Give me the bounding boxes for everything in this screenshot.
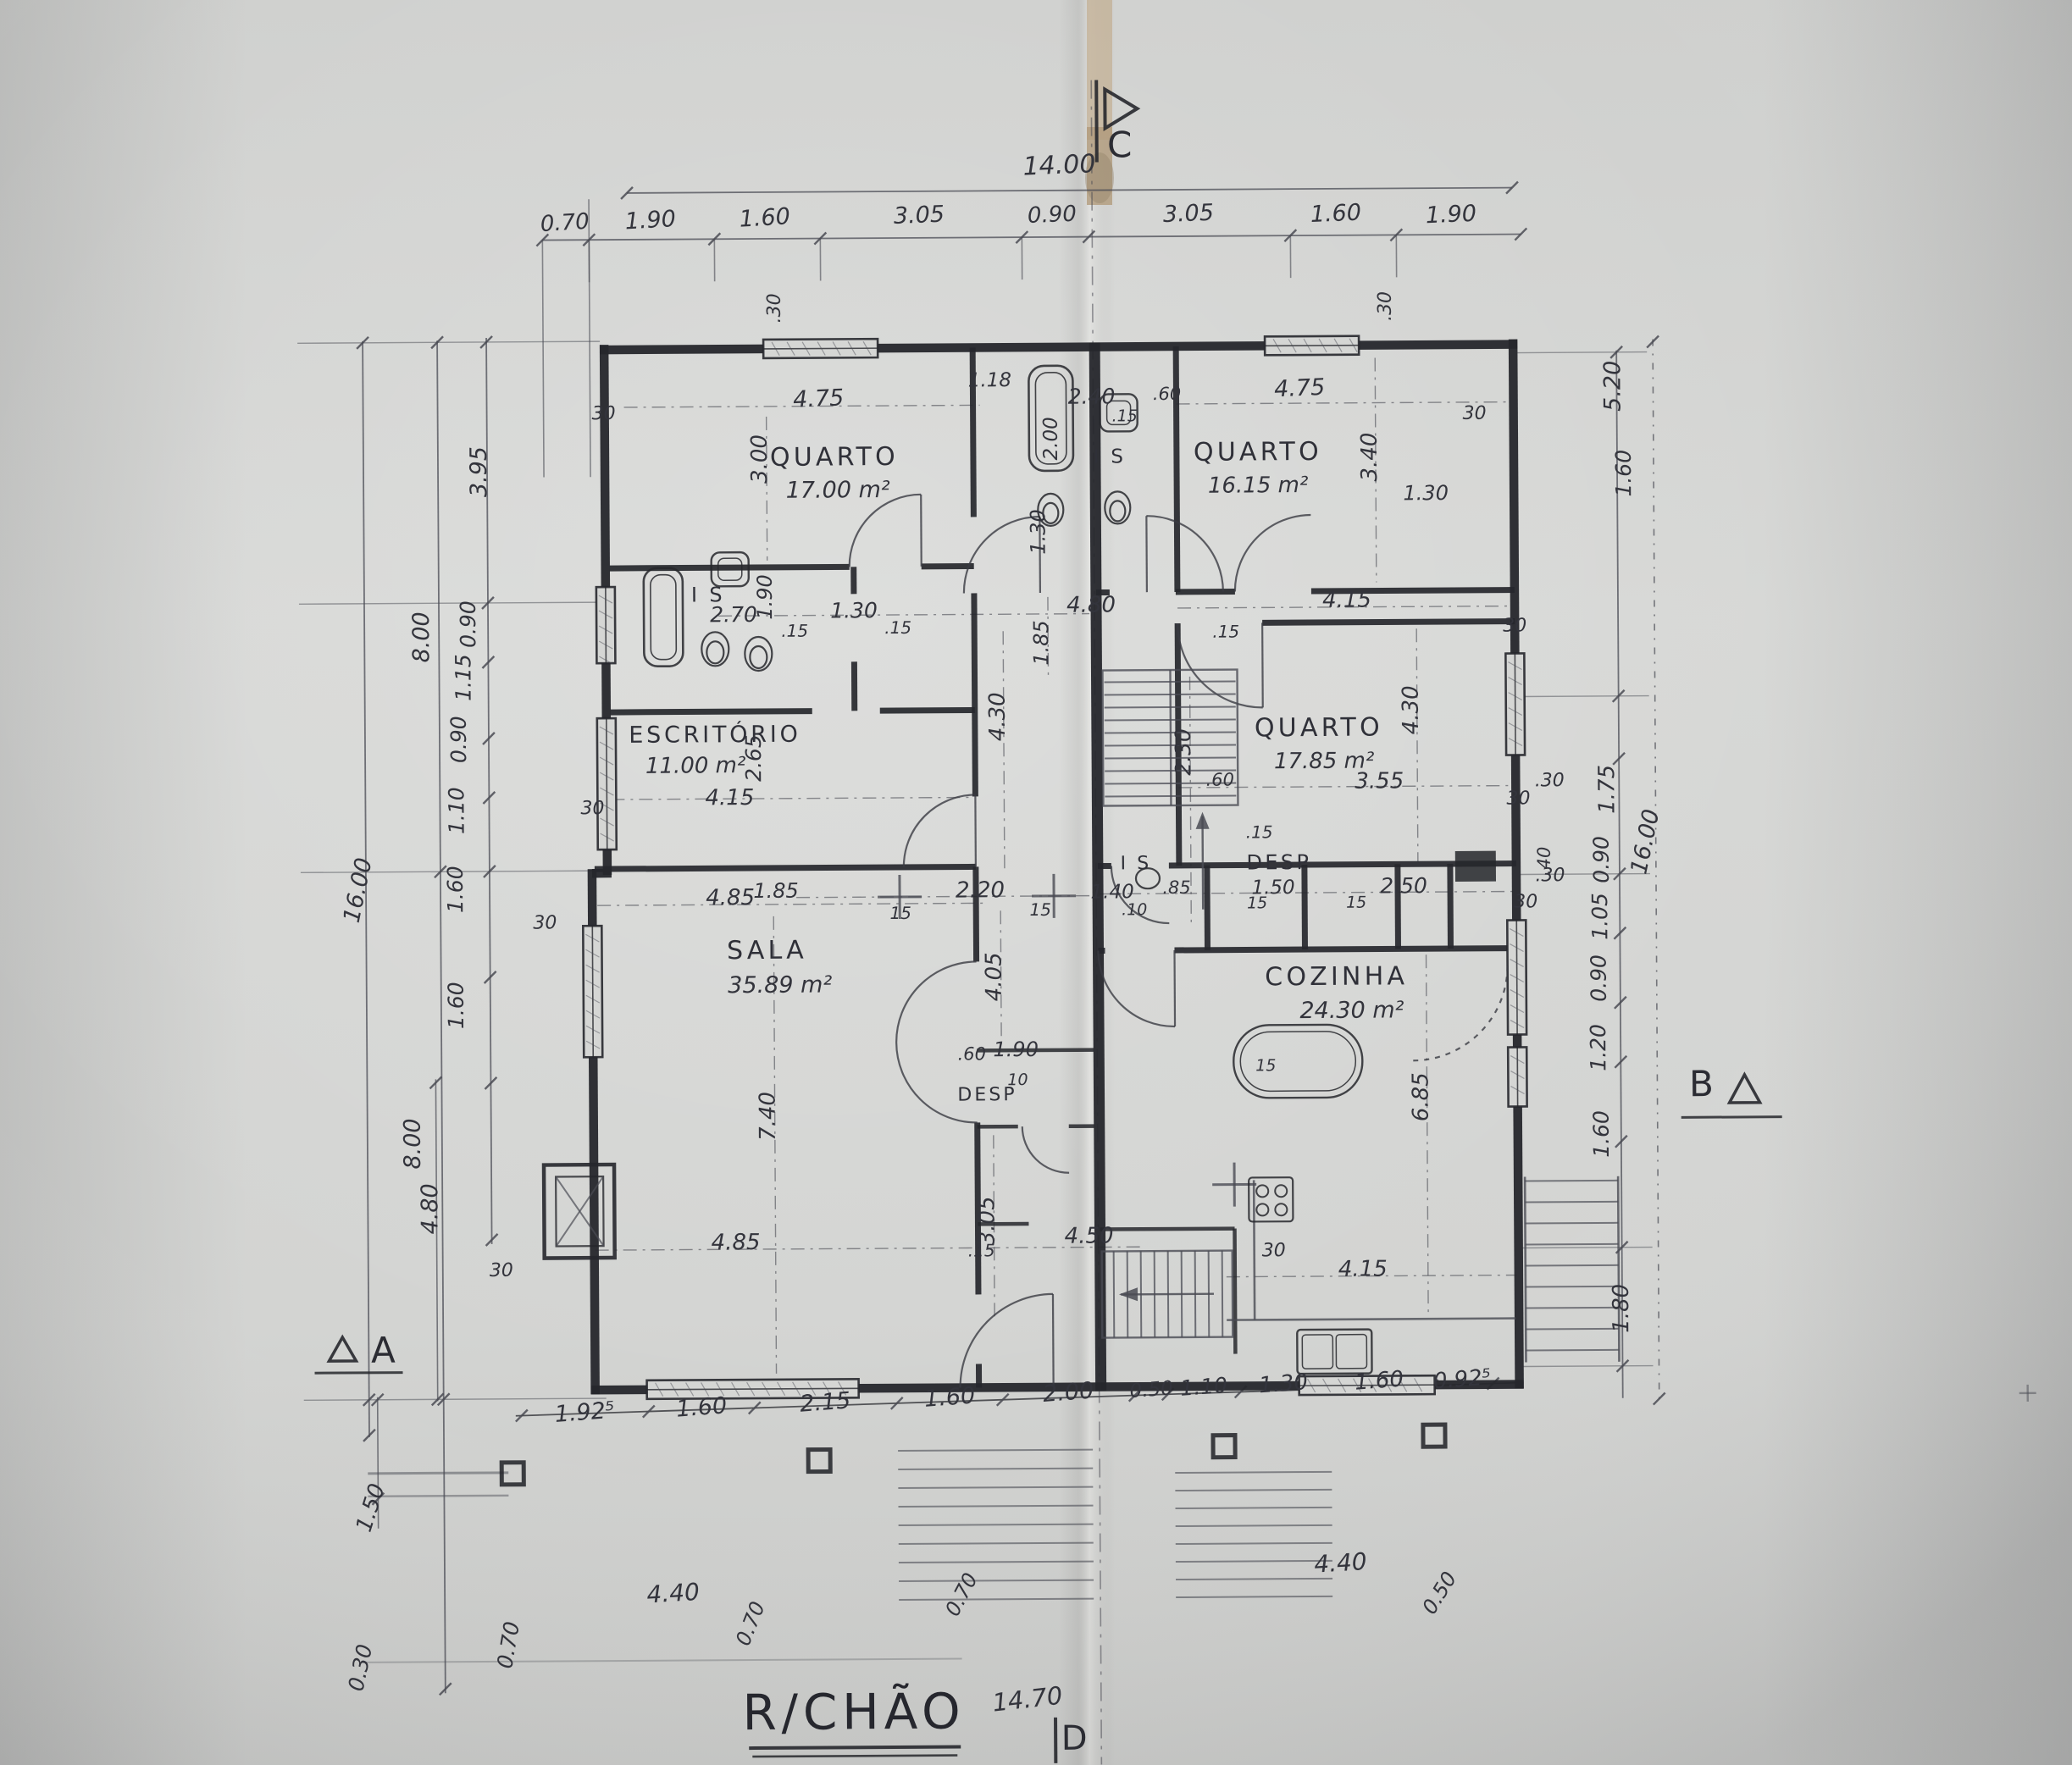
dimension-label: .15 [968,1240,995,1260]
room-label-desp-1: DESP [957,1084,1017,1105]
dimension-label: 4.50 [1065,1223,1114,1248]
dimension-label: 5.20 [1599,361,1626,412]
stair-tread [1525,1181,1618,1181]
interior-wall [1174,949,1516,950]
dim-ext [1523,1248,1653,1248]
stair-tread [1114,1251,1115,1337]
dimension-label: 1.90 [1425,201,1476,229]
dimension-label: 15 [1346,894,1366,912]
photographed-floor-plan: { "drawing": { "title": "R/CHÃO", "type"… [0,0,2072,1765]
dimension-label: 30 [1506,788,1530,809]
room-label-cozinha: COZINHA [1265,961,1408,992]
dimension-label: 4.75 [1273,374,1325,402]
window-mullion [606,587,607,663]
dimension-label: 1.60 [444,982,468,1029]
stair-tread [1526,1244,1619,1245]
dimension-label: 3.40 [1357,433,1382,482]
dimension-label: 0.70 [540,209,590,237]
dimension-label: 30 [533,912,557,933]
stair-arrow [1203,816,1204,910]
dimension-label: .60 [1205,770,1234,790]
dimension-label: 15 [1029,899,1051,920]
dimension-label: 1.60 [675,1392,728,1422]
interior-wall [1450,864,1451,949]
interior-wall [1207,866,1208,950]
dimension-label: 2.65 [741,734,766,782]
dimension-label: .15 [1111,407,1137,425]
porch-step [899,1562,1094,1563]
thin-wall [1235,1229,1236,1354]
porch-step [899,1599,1094,1600]
door-swing [1146,516,1147,592]
porch-step [898,1450,1093,1451]
porch-step [899,1524,1094,1525]
door-swing [1053,1294,1054,1387]
interior-wall [1262,622,1515,623]
porch-step [1176,1508,1332,1508]
dimension-label: 3.05 [974,1196,1000,1245]
dimension-label: 8.00 [408,611,435,662]
porch-step [1176,1596,1332,1597]
dimension-label: 30 [1503,615,1526,636]
porch-step [899,1543,1094,1544]
dimension-label: 4.15 [705,785,754,811]
dimension-label: 1.18 [968,369,1011,391]
dimension-label: 1.60 [1589,1110,1614,1158]
section-marker-c-label: C [1107,124,1133,165]
interior-wall [880,710,975,711]
dimension-label: 6.85 [1408,1072,1433,1121]
dimension-label: .15 [1246,822,1273,842]
dim-ext [1520,696,1649,697]
dimension-label: 30 [592,403,616,424]
dimension-label: 30 [490,1260,513,1281]
dimension-label: .15 [1212,622,1239,642]
dimension-label: 4.40 [1313,1547,1367,1579]
dimension-label: 24.30 m² [1299,997,1404,1024]
stair-tread [1526,1308,1619,1309]
dimension-label: .30 [1535,770,1565,791]
stair-tread [1526,1329,1619,1330]
dimension-label: 1.85 [753,879,799,903]
dimension-label: .10 [1122,900,1147,919]
dimension-label: 1.60 [1611,450,1636,497]
dimension-label: 2.00 [1040,417,1062,460]
window-mullion [1265,346,1359,346]
dimension-label: 0.90 [1027,202,1077,229]
title-underline [749,1747,961,1749]
dimension-label: 1.92⁵ [554,1397,616,1428]
interior-wall [611,711,812,712]
door-swing [1262,622,1263,707]
dimension-label: .15 [781,621,808,641]
room-label-desp-2: DESP [1246,850,1311,874]
window-mullion [763,348,878,349]
section-marker-c-bar [1096,80,1097,163]
section-marker-a-label: A [371,1330,396,1371]
floor-plan-svg: 14.000.701.901.603.050.903.051.601.903.9… [0,0,2072,1765]
service-stair-side [1618,1176,1619,1362]
dimension-label: 4.30 [985,692,1011,741]
dimension-label: 1.60 [1354,1366,1404,1395]
dimension-label: 15 [1247,894,1267,912]
dimension-label: 30 [580,798,604,819]
porch-step [1176,1543,1332,1544]
dimension-label: 2.70 [710,602,757,627]
dimension-label: 1.05 [1587,893,1612,940]
dimension-label: 0.90 [1589,836,1614,883]
dimension-label: 2.40 [1068,384,1116,408]
window-mullion [1515,654,1515,755]
dimension-label: 35.89 m² [728,971,832,999]
porch-step [1175,1490,1332,1491]
dimension-label: 3.00 [747,434,773,484]
porch-step [898,1487,1093,1488]
dimension-label: 1.80 [1609,1284,1634,1333]
kitchen-counter [1254,1180,1255,1320]
porch-step [1176,1579,1332,1580]
dimension-label: 1.20 [1586,1024,1610,1071]
dim-total-width: 14.00 [1022,149,1096,181]
title-underline-2 [752,1756,957,1757]
paper-background [0,0,2072,1765]
dimension-label: 7.40 [756,1092,781,1141]
stair-tread [1525,1202,1618,1203]
dimension-label: 30 [1514,891,1537,912]
dimension-label: 0.90 [1587,954,1611,1002]
dimension-label: .85 [1162,877,1191,898]
dimension-label: 1.90 [753,574,777,620]
section-marker-b-underline [1681,1117,1782,1118]
dimension-label: 4.15 [1322,588,1371,613]
dimension-label: 1.30 [830,598,878,622]
dimension-label: 4.85 [706,885,755,910]
thin-wall [1100,1229,1235,1230]
door-swing [1174,950,1175,1026]
drawing-title: R/CHÃO [742,1682,965,1742]
dimension-label: 2.20 [956,877,1005,903]
room-label-quarto-1: QUARTO [770,442,899,473]
dimension-label: 1.75 [1594,765,1620,814]
stair-tread [1526,1286,1619,1287]
stair-tread [1222,1251,1223,1337]
dimension-label: 4.80 [1066,592,1116,617]
dimension-label: 0.50 [1129,1377,1174,1403]
dimension-label: 3.05 [1162,200,1214,228]
dimension-label: 1.10 [1179,1373,1228,1401]
dimension-label: 0.90 [456,600,480,648]
dimension-label: .15 [884,617,911,638]
dimension-label: 1.15 [451,654,475,701]
dimension-label: 17.00 m² [786,477,890,504]
dimension-label: 1.30 [1403,481,1449,505]
room-label-escritorio: ESCRITÓRIO [629,721,801,749]
stair-tread [1525,1223,1618,1224]
dimension-label: 1.60 [739,203,791,232]
interior-wall [1305,865,1305,949]
dimension-label: 30 [1463,403,1487,424]
dimension-label: 4.40 [646,1578,701,1609]
dimension-label: 0.92⁵ [1432,1364,1492,1394]
dimension-label: 1.30 [1258,1369,1309,1398]
dimension-label: 2.50 [1380,873,1427,898]
section-marker-b-label: B [1689,1063,1714,1104]
dimension-label: 8.00 [400,1118,426,1169]
room-label-quarto-2: QUARTO [1194,437,1322,468]
dimension-label: 16.15 m² [1208,473,1309,499]
dimension-label: 3.55 [1355,768,1404,794]
dimension-label: 1.60 [1310,200,1361,228]
room-label-quarto-3: QUARTO [1255,712,1383,743]
window-mullion [592,926,593,1057]
dimension-label: .30 [764,293,785,323]
garden-wall-line [368,1496,508,1497]
porch-step [1176,1561,1332,1562]
photo-sheen [0,0,2072,1765]
dimension-label: 4.30 [1399,685,1424,734]
room-label-is-3: I S [1120,853,1151,874]
porch-step [899,1580,1094,1581]
door-swing [921,495,922,567]
dimension-label: .60 [957,1043,986,1064]
dimension-label: 1.90 [624,206,677,235]
dimension-label: 2.15 [799,1387,851,1417]
dimension-label: 11.00 m² [645,753,746,779]
porch-step [1176,1525,1332,1526]
interior-wall [595,866,976,869]
section-marker-d-label: D [1061,1719,1088,1758]
dimension-label: 4.05 [982,952,1007,1001]
dimension-label: 3.05 [893,202,945,230]
porch-step [898,1469,1093,1469]
window-mullion [607,718,607,849]
dimension-label: 3.95 [466,446,492,497]
dimension-label: 1.10 [444,787,468,834]
dimension-label: 4.15 [1338,1256,1388,1281]
stair-tread [1526,1350,1619,1351]
dimension-label: 4.75 [793,385,845,412]
service-stair-side [1525,1176,1526,1362]
dimension-label: .30 [1375,291,1396,321]
window-mullion [1516,921,1517,1035]
dimension-label: .40 [1534,847,1554,876]
room-label-is-2: I S [1094,445,1127,468]
dimension-label: 1.90 [993,1037,1039,1061]
dimension-label: 15 [889,903,911,923]
dimension-label: 2.30 [1171,728,1195,776]
garden-wall-line [368,1473,508,1474]
dimension-label: 15 [1255,1056,1276,1075]
door-swing [975,794,976,866]
room-label-sala: SALA [727,936,807,966]
dimension-label: 1.85 [1029,620,1053,666]
dimension-label: 1.60 [923,1382,976,1412]
dimension-label: 0.90 [446,716,471,763]
dimension-label: .60 [1153,384,1182,404]
water-heater [1455,851,1496,882]
dimension-label: 1.60 [443,866,468,913]
porch-step [1175,1472,1332,1473]
dim-ext [1517,352,1647,353]
dimension-label: 2.00 [1042,1378,1094,1408]
dimension-label: 4.80 [417,1183,443,1234]
porch-step [898,1506,1093,1507]
dim-ext [1524,1366,1654,1367]
dimension-label: 30 [1262,1240,1286,1261]
interior-wall [610,567,850,568]
dimension-label: 1.30 [1026,509,1050,555]
section-marker-a-underline [315,1373,403,1374]
interior-wall [974,593,975,796]
stair-tread [1526,1265,1619,1266]
dimension-label: 4.85 [712,1230,761,1255]
